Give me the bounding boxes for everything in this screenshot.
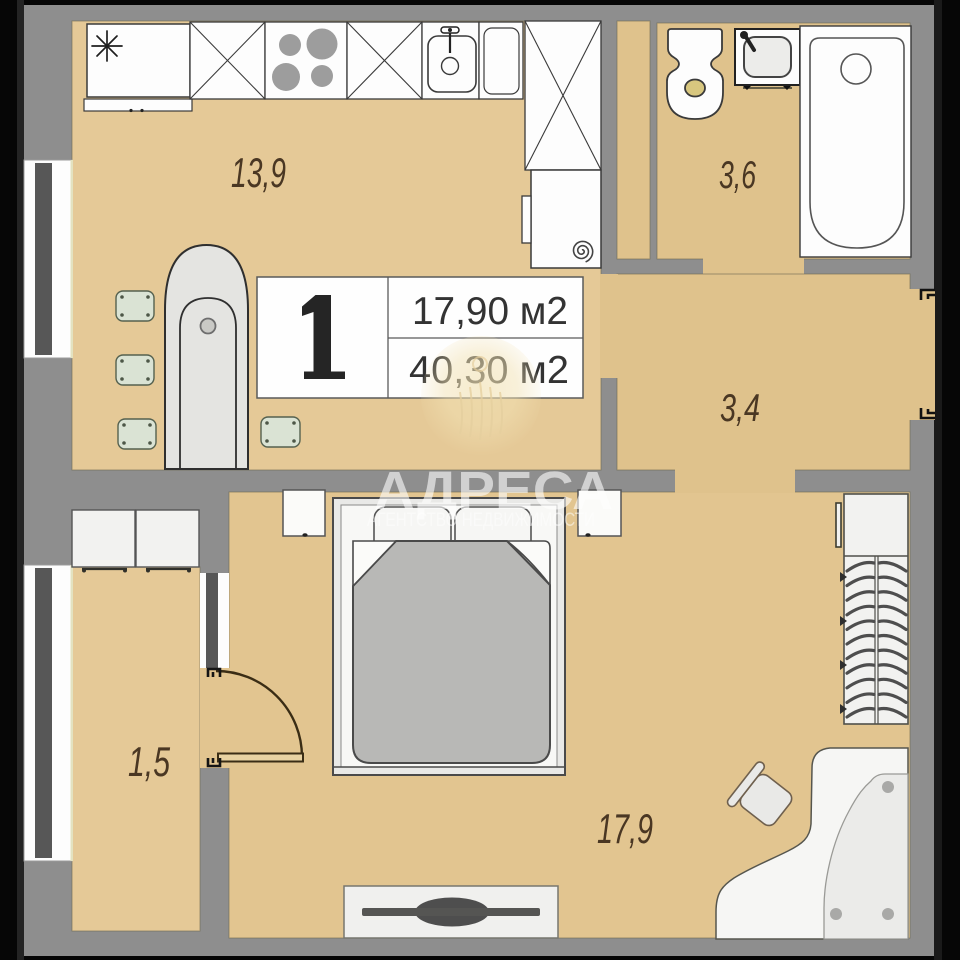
svg-text:3,4: 3,4 (720, 387, 760, 430)
svg-text:АГЕНТСТВО НЕДВИЖИМОСТИ: АГЕНТСТВО НЕДВИЖИМОСТИ (367, 510, 595, 531)
svg-text:13,9: 13,9 (231, 149, 286, 196)
svg-text:1,5: 1,5 (128, 738, 170, 785)
svg-text:17,9: 17,9 (597, 805, 653, 852)
svg-text:3,6: 3,6 (719, 154, 756, 197)
svg-text:17,90 м2: 17,90 м2 (412, 290, 568, 333)
